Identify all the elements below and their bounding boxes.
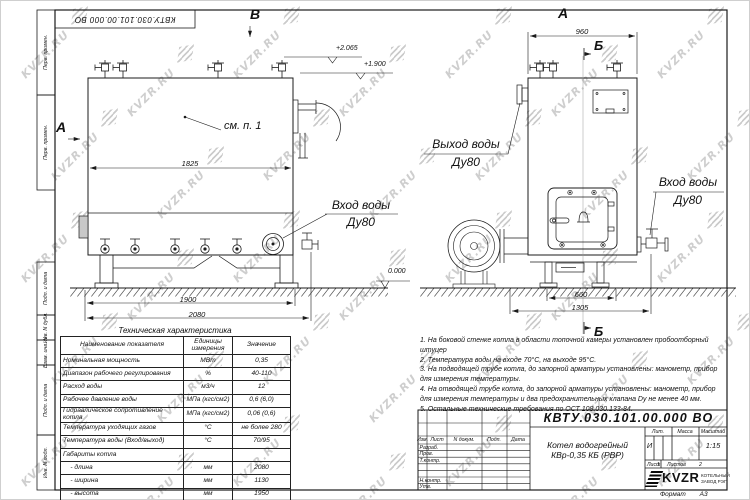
strip-label-perv-primen: Перв. примен. <box>37 10 55 95</box>
dim-1825: 1825 <box>182 159 199 168</box>
spec-cell: % <box>184 368 233 381</box>
spec-cell: 12 <box>233 381 291 394</box>
spec-cell: °С <box>184 422 233 435</box>
view-label-a-top: А <box>558 5 568 21</box>
note-line: 1. На боковой стенке котла в области топ… <box>420 336 728 356</box>
spec-cell <box>184 448 233 461</box>
spec-cell: Рабочее давление воды <box>61 394 184 407</box>
role-razrab: Разраб. <box>420 445 439 451</box>
spec-cell: - длина <box>61 462 184 475</box>
view-label-b-top: В <box>250 6 260 22</box>
spec-table-title: Техническая характеристика <box>60 326 290 335</box>
dim-960: 960 <box>576 27 589 36</box>
col-list: Лист <box>430 437 443 443</box>
product-name-line1: Котел водогрейный <box>530 440 645 450</box>
col-ndoc: N докум. <box>454 437 475 443</box>
kvzr-company-line1: КОТЕЛЬНЫЙ <box>701 473 730 478</box>
note-line: 2. Температура воды на входе 70°С, на вы… <box>420 356 728 366</box>
spec-cell: °С <box>184 435 233 448</box>
table-row: Гидравлическое сопротивление котлаМПа (к… <box>61 407 291 422</box>
spec-cell: Температура воды (Вход/выход) <box>61 435 184 448</box>
kvzr-company-line2: ЗАВОД РЭП <box>701 479 727 484</box>
spec-cell: 0,35 <box>233 355 291 368</box>
elevation-1900: +1.900 <box>364 61 386 68</box>
dim-2080: 2080 <box>189 310 206 319</box>
spec-cell: мм <box>184 488 233 500</box>
format-label: Формат А3 <box>660 491 708 498</box>
doc-number-flipped: КВТУ.030.101.00.000 ВО <box>55 10 195 28</box>
role-prov: Пров. <box>420 451 434 457</box>
scale-value: 1:15 <box>706 441 721 450</box>
role-nkontr: Н.контр. <box>420 478 442 484</box>
see-item-callout: см. п. 1 <box>224 120 261 132</box>
spec-cell: 40-110 <box>233 368 291 381</box>
spec-cell: Диапазон рабочего регулирования <box>61 368 184 381</box>
spec-header-value: Значение <box>233 337 291 355</box>
elevation-zero: 0.000 <box>388 268 406 275</box>
spec-cell: Расход воды <box>61 381 184 394</box>
table-row: - ширинамм1130 <box>61 475 291 488</box>
scale-label: Масштаб <box>701 429 725 435</box>
col-data: Дата <box>511 437 525 443</box>
spec-table: Наименование показателя Единицы измерени… <box>60 336 291 500</box>
spec-cell: не более 280 <box>233 422 291 435</box>
spec-cell: 1130 <box>233 475 291 488</box>
spec-cell: мм <box>184 475 233 488</box>
lit-value: И <box>647 441 652 450</box>
strip-label-sprav: Перв. примен. <box>37 95 55 190</box>
spec-cell: мм <box>184 462 233 475</box>
table-row: Рабочее давление водыМПа (кгс/см2)0,6 (6… <box>61 394 291 407</box>
doc-number: КВТУ.030.101.00.000 ВО <box>530 410 727 427</box>
spec-cell: 1950 <box>233 488 291 500</box>
format-word: Формат <box>660 491 686 498</box>
inlet-water-label-left: Вход воды <box>332 198 390 212</box>
table-row: - высотамм1950 <box>61 488 291 500</box>
role-tkontr: Т.контр. <box>420 458 441 464</box>
dim-660: 660 <box>575 290 588 299</box>
section-label-b-top: Б <box>594 38 603 53</box>
elevation-2065: +2.065 <box>336 45 358 52</box>
format-value: А3 <box>700 491 708 498</box>
spec-cell: м3/ч <box>184 381 233 394</box>
spec-cell: Номинальная мощность <box>61 355 184 368</box>
sheets-label: Листов <box>667 462 686 468</box>
spec-cell: - ширина <box>61 475 184 488</box>
note-line: 3. На подводящей трубе котла, до запорно… <box>420 365 728 385</box>
col-izm: Изм. <box>417 437 428 443</box>
spec-cell: Температура уходящих газов <box>61 422 184 435</box>
inlet-water-dn-left: Ду80 <box>347 215 375 229</box>
col-podp: Подп. <box>487 437 501 443</box>
spec-cell: МПа (кгс/см2) <box>184 394 233 407</box>
role-utv: Утв. <box>420 484 432 490</box>
table-row: - длинамм2080 <box>61 462 291 475</box>
spec-cell: - высота <box>61 488 184 500</box>
spec-cell: 0,6 (6,0) <box>233 394 291 407</box>
product-name-line2: КВр-0,35 КБ (РВР) <box>530 450 645 460</box>
spec-cell: 70/95 <box>233 435 291 448</box>
spec-cell: МВт <box>184 355 233 368</box>
strip-label-inv-podl: Инв. N подл. <box>37 435 55 490</box>
spec-cell: МПа (кгс/см2) <box>184 407 233 422</box>
inlet-water-dn-right: Ду80 <box>674 193 702 207</box>
strip-label-podp-data-1: Подп. и дата <box>37 262 55 315</box>
outlet-water-dn: Ду80 <box>452 155 480 169</box>
spec-header-name: Наименование показателя <box>61 337 184 355</box>
sheets-value: 2 <box>699 462 702 468</box>
table-row: Габариты котла <box>61 448 291 461</box>
inlet-water-label-right: Вход воды <box>659 175 717 189</box>
dim-1900: 1900 <box>180 295 197 304</box>
kvzr-logo-text: KVZR <box>662 470 699 485</box>
lit-label: Лит. <box>652 429 664 435</box>
spec-cell: Гидравлическое сопротивление котла <box>61 407 184 422</box>
table-row: Температура воды (Вход/выход)°С70/95 <box>61 435 291 448</box>
spec-cell: 2080 <box>233 462 291 475</box>
table-row: Температура уходящих газов°Сне более 280 <box>61 422 291 435</box>
mass-label: Масса <box>677 429 692 435</box>
spec-cell <box>233 448 291 461</box>
spec-cell: Габариты котла <box>61 448 184 461</box>
table-row: Диапазон рабочего регулирования%40-110 <box>61 368 291 381</box>
table-row: Номинальная мощностьМВт0,35 <box>61 355 291 368</box>
dim-1305: 1305 <box>572 303 589 312</box>
spec-header-units: Единицы измерения <box>184 337 233 355</box>
spec-header-row: Наименование показателя Единицы измерени… <box>61 337 291 355</box>
outlet-water-label: Выход воды <box>432 137 499 151</box>
table-row: Расход водым3/ч12 <box>61 381 291 394</box>
technical-notes: 1. На боковой стенке котла в области топ… <box>420 336 728 414</box>
view-label-a-left: А <box>56 119 66 135</box>
strip-label-vzam-inv: Взам. инв. N <box>37 340 55 365</box>
strip-label-podp-data-2: Подп. и дата <box>37 365 55 435</box>
spec-cell: 0,06 (0,6) <box>233 407 291 422</box>
drawing-sheet: KVZR.RUKVZR.RUKVZR.RUKVZR.RUKVZR.RUKVZR.… <box>0 0 750 500</box>
sheet-value: 1 <box>657 462 660 468</box>
note-line: 4. На отводящей трубе котла, до запорной… <box>420 385 728 405</box>
